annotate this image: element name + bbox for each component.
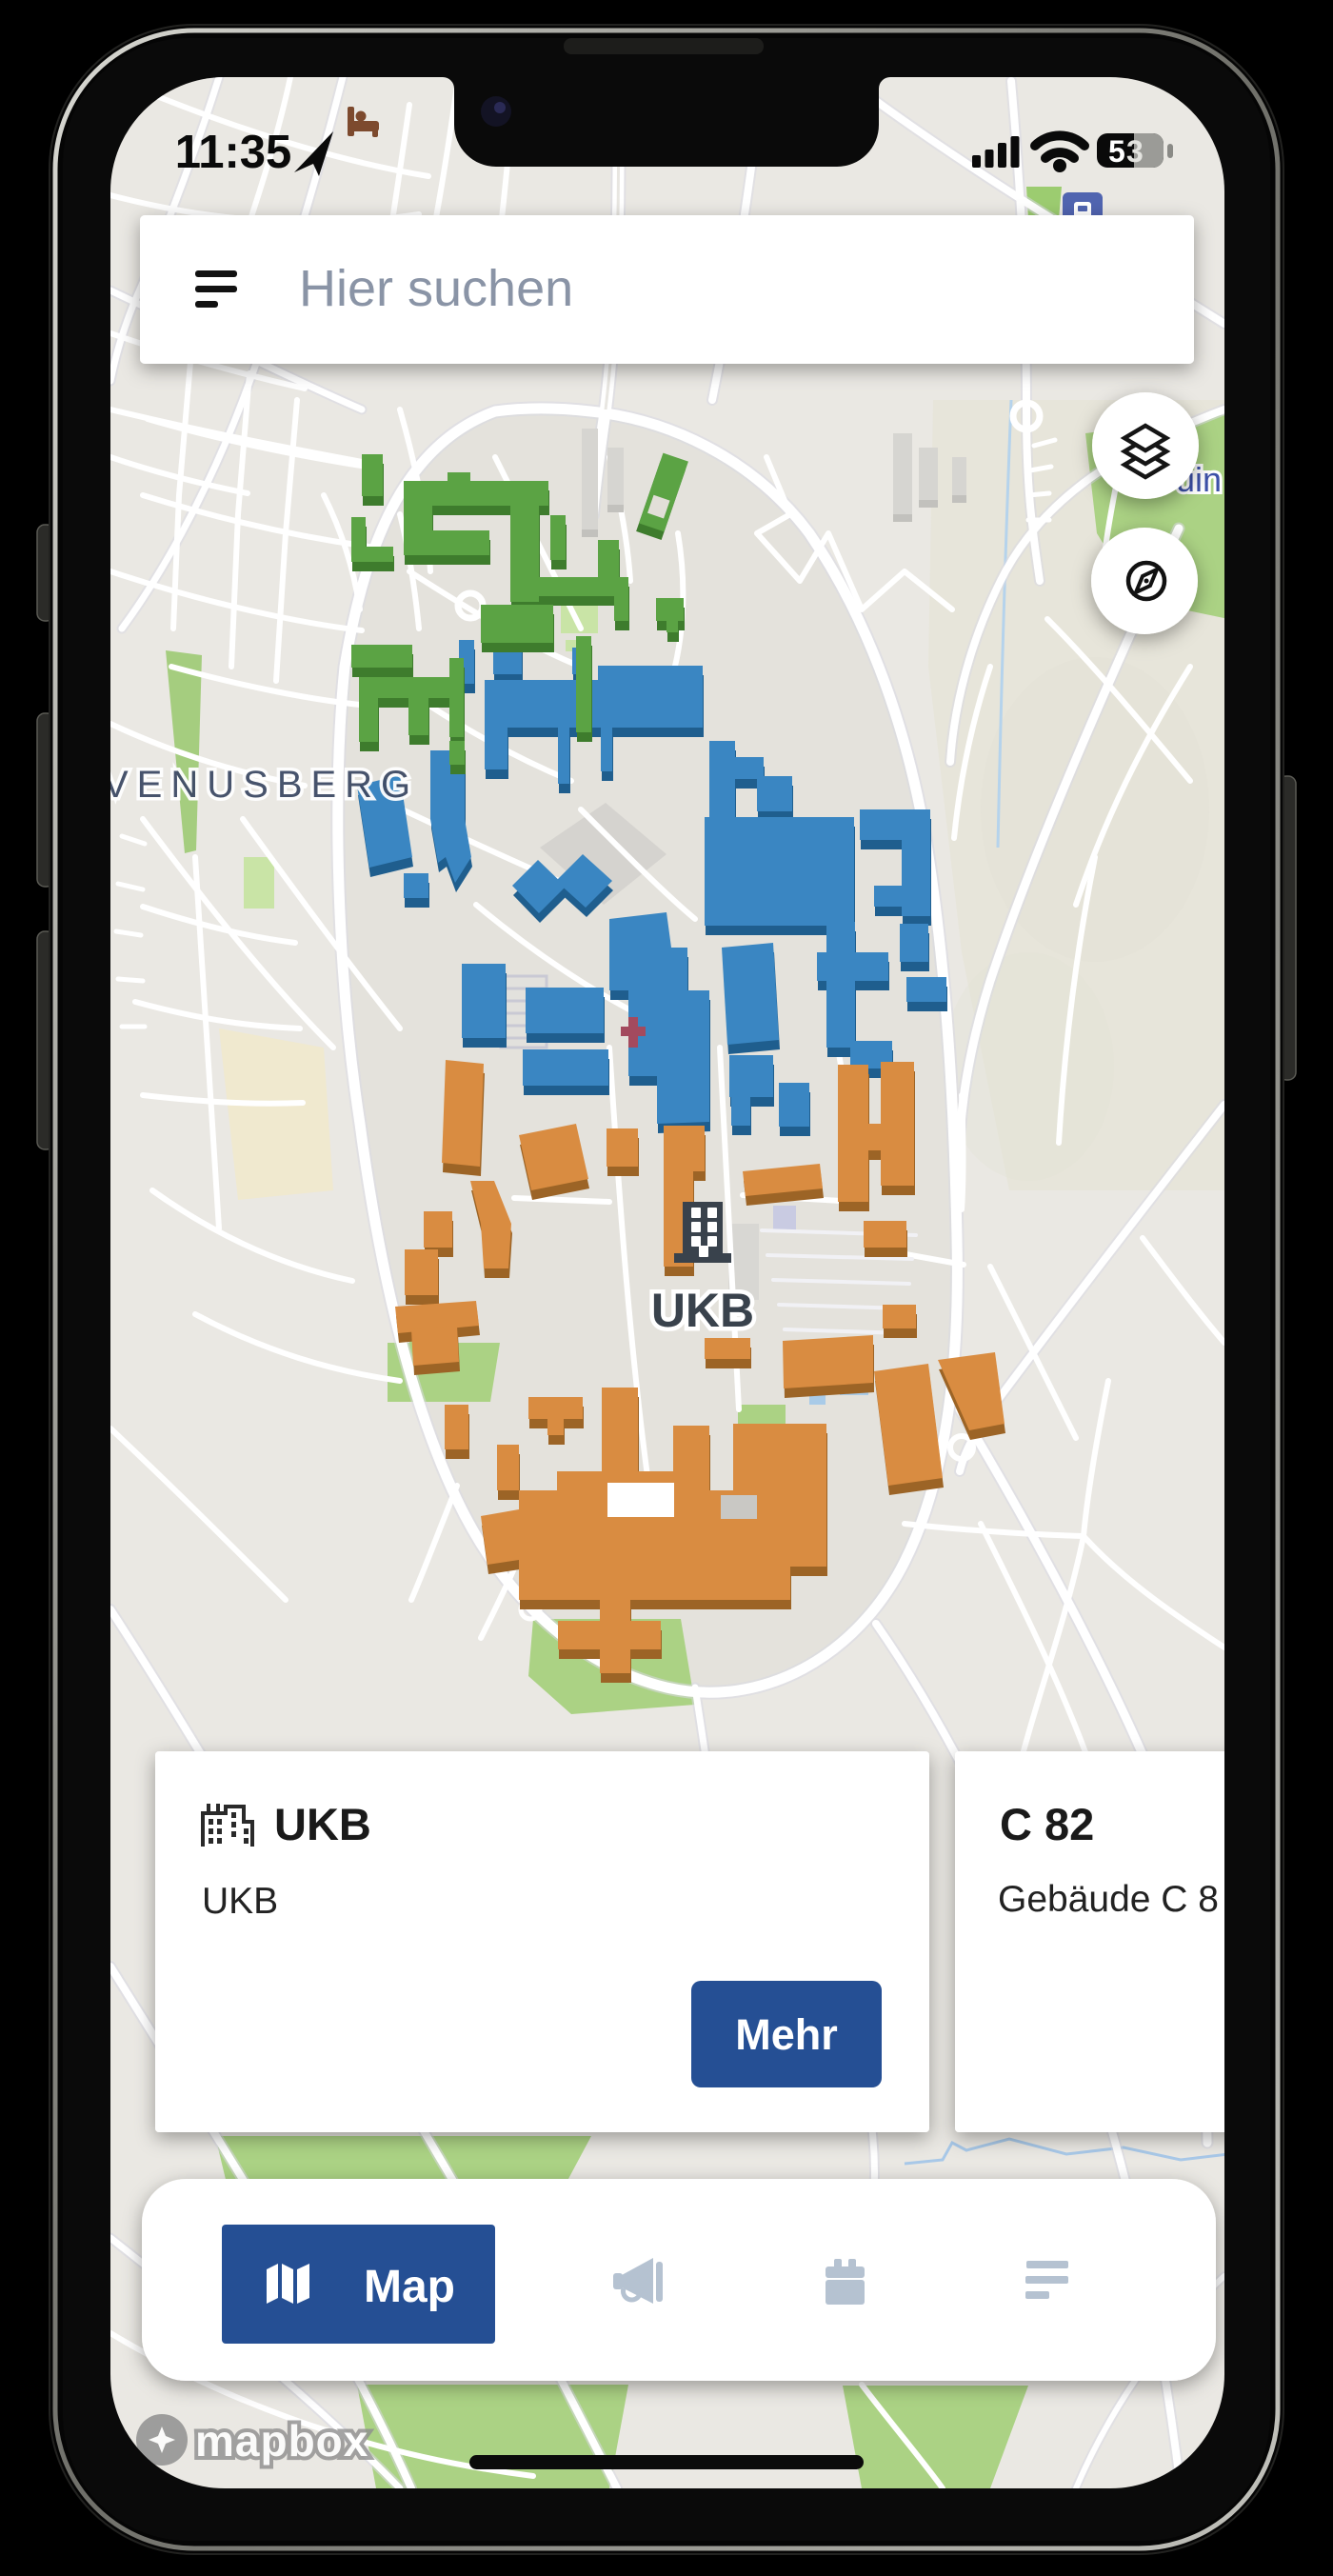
svg-text:mapbox: mapbox	[195, 2416, 368, 2466]
svg-text:Gebäude C 8: Gebäude C 8	[998, 1879, 1219, 1920]
svg-text:C 82: C 82	[1000, 1799, 1094, 1849]
svg-text:UKB: UKB	[274, 1799, 371, 1849]
svg-text:VENUSBERG: VENUSBERG	[103, 764, 419, 806]
svg-text:3: 3	[1126, 134, 1144, 169]
svg-text:Mehr: Mehr	[735, 2010, 838, 2059]
svg-text:5: 5	[1108, 134, 1125, 169]
svg-text:Map: Map	[364, 2262, 455, 2312]
svg-text:Hier suchen: Hier suchen	[299, 260, 573, 317]
svg-text:UKB: UKB	[651, 1284, 754, 1337]
svg-text:UKB: UKB	[202, 1881, 278, 1922]
svg-text:11:35: 11:35	[175, 127, 292, 178]
